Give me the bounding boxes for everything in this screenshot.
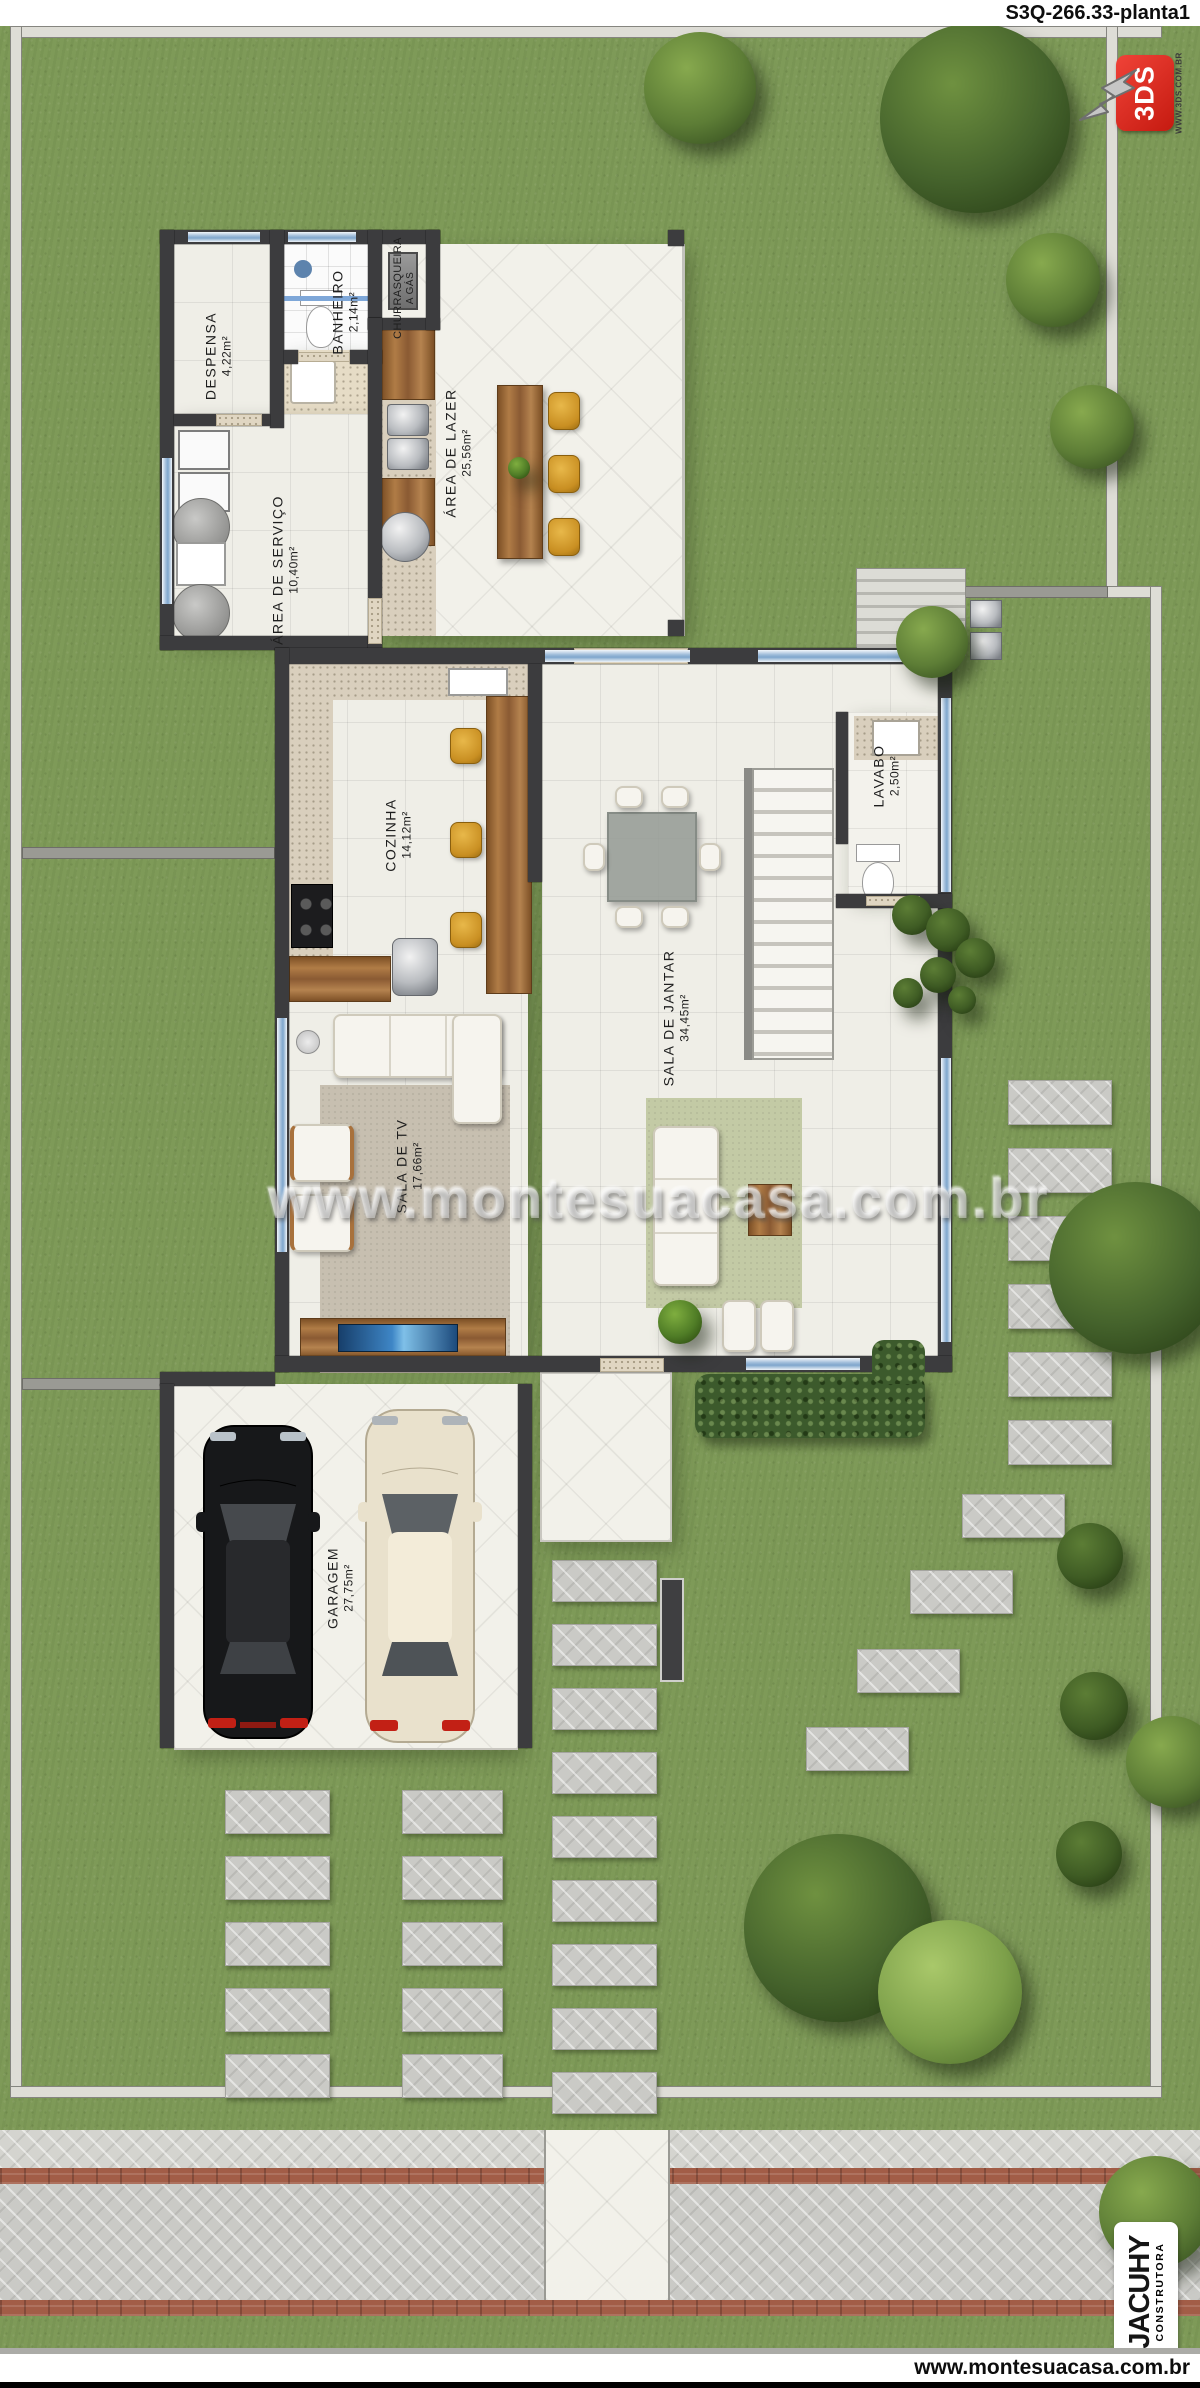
label-cozinha: COZINHA14,12m² — [383, 798, 414, 872]
dining-table-glass — [607, 812, 697, 902]
paver-slab — [552, 1624, 657, 1666]
builder-logo-text: JACUHY CONSTRUTORA — [1126, 2235, 1166, 2348]
window — [288, 232, 356, 242]
room-area: 10,40m² — [287, 495, 301, 645]
room-area: A GÁS — [405, 237, 416, 339]
paver-slab — [225, 1922, 330, 1966]
sofa-chaise — [452, 1014, 502, 1124]
dining-chair — [661, 906, 689, 928]
room-name: LAVABO — [871, 745, 887, 808]
ottoman — [760, 1300, 794, 1352]
wall — [160, 1372, 275, 1386]
tree — [878, 1920, 1022, 2064]
room-area: 27,75m² — [342, 1547, 356, 1629]
floor-porch — [540, 1372, 672, 1542]
window — [941, 698, 951, 892]
kitchen-island — [486, 696, 532, 994]
wall — [160, 1384, 174, 1748]
shrub — [1060, 1672, 1128, 1740]
ac-unit — [970, 632, 1002, 660]
column — [668, 620, 684, 636]
3ds-arrow-icon — [1076, 66, 1140, 143]
wall — [528, 664, 542, 882]
label-churrasqueira: CHURRASQUEIRAA GÁS — [392, 237, 416, 339]
footer-bar: www.montesuacasa.com.br — [0, 2354, 1200, 2382]
builder-logo: JACUHY CONSTRUTORA — [1114, 2222, 1178, 2362]
paver-slab — [552, 1816, 657, 1858]
paver-slab — [552, 2008, 657, 2050]
watermark-text: www.montesuacasa.com.br — [268, 1166, 1050, 1231]
bar-chair — [548, 455, 580, 493]
window — [545, 650, 690, 662]
stair-rail — [744, 768, 752, 1060]
wall — [426, 230, 440, 330]
kitchen-cabinet-bottom — [289, 956, 391, 1002]
car-black — [196, 1420, 320, 1749]
dining-chair — [615, 906, 643, 928]
dining-chair — [661, 786, 689, 808]
beer-keg — [380, 512, 430, 562]
lot-wall-left — [10, 26, 22, 2096]
kitchen-sink — [448, 668, 508, 696]
room-name: BANHEIRO — [330, 269, 346, 354]
3ds-site: WWW.3DS.COM.BR — [1172, 55, 1186, 131]
garage-yard-wall-left — [22, 1378, 162, 1390]
paver-slab — [1008, 1420, 1112, 1465]
room-name: ÁREA DE LAZER — [443, 388, 459, 517]
washer — [178, 430, 230, 470]
counter-sink — [387, 438, 429, 470]
paver-slab — [552, 1688, 657, 1730]
paver-slab — [962, 1494, 1065, 1538]
room-name: CHURRASQUEIRA — [392, 237, 404, 339]
paver-slab — [402, 1856, 503, 1900]
shrub — [893, 978, 923, 1008]
wall — [836, 712, 848, 844]
plan-code: S3Q-266.33-planta1 — [1005, 2, 1190, 24]
paver-slab — [225, 1856, 330, 1900]
shrub — [955, 938, 995, 978]
room-area: 34,45m² — [678, 950, 692, 1087]
hedge — [872, 1340, 925, 1384]
room-area: 2,50m² — [888, 745, 902, 808]
trash-bin — [392, 938, 438, 996]
wall — [275, 648, 289, 1372]
paver-slab — [552, 1560, 657, 1602]
room-name: GARAGEM — [325, 1547, 341, 1629]
window — [162, 458, 172, 604]
room-name: DESPENSA — [203, 312, 219, 400]
shower-head — [294, 260, 312, 278]
room-area: 25,56m² — [460, 388, 474, 517]
ac-unit — [970, 600, 1002, 628]
paver-slab — [552, 1944, 657, 1986]
paver-slab — [806, 1727, 909, 1771]
brick-strip-bottom — [0, 2300, 1200, 2316]
builder-name: JACUHY — [1126, 2235, 1154, 2348]
paver-slab — [1008, 1352, 1112, 1397]
bar-chair — [548, 518, 580, 556]
shrub — [658, 1300, 702, 1344]
tree — [1050, 385, 1134, 469]
bar-chair — [450, 822, 482, 858]
counter-sink — [387, 404, 429, 436]
room-name: ÁREA DE SERVIÇO — [270, 495, 286, 645]
door-sill — [216, 414, 262, 426]
paver-slab — [402, 1988, 503, 2032]
paver-slab — [552, 1752, 657, 1794]
ottoman — [722, 1300, 756, 1352]
paver-slab — [402, 1922, 503, 1966]
laundry-sink — [176, 542, 226, 586]
car-cream — [358, 1404, 482, 1753]
bar-chair — [450, 728, 482, 764]
floor-lamp — [296, 1030, 320, 1054]
paver-slab — [857, 1649, 960, 1693]
label-sala-jantar: SALA DE JANTAR34,45m² — [661, 950, 692, 1087]
kitchen-counter-left — [289, 700, 333, 1000]
label-garagem: GARAGEM27,75m² — [325, 1547, 356, 1629]
side-yard-wall-left — [22, 847, 275, 859]
side-yard-wall-right — [964, 586, 1108, 598]
shrub — [508, 457, 530, 479]
room-name: COZINHA — [383, 798, 399, 872]
laundry-tank — [172, 584, 230, 642]
paver-slab — [552, 1880, 657, 1922]
shrub — [948, 986, 976, 1014]
door-sill — [368, 598, 382, 644]
room-area: 4,22m² — [220, 312, 234, 400]
footer-url: www.montesuacasa.com.br — [914, 2356, 1190, 2379]
room-name: SALA DE JANTAR — [661, 950, 677, 1087]
column — [668, 230, 684, 246]
tv-screen — [338, 1324, 458, 1352]
label-lavabo: LAVABO2,50m² — [871, 745, 902, 808]
title-bar: S3Q-266.33-planta1 — [0, 0, 1200, 26]
label-area-servico: ÁREA DE SERVIÇO10,40m² — [270, 495, 301, 645]
bottom-black-bar — [0, 2382, 1200, 2388]
paver-slab — [225, 1988, 330, 2032]
wall — [284, 350, 298, 364]
bar-chair — [548, 392, 580, 430]
paver-slab — [1008, 1080, 1112, 1125]
dining-chair — [699, 843, 721, 871]
window — [746, 1358, 860, 1370]
room-area: 14,12m² — [400, 798, 414, 872]
wall — [368, 230, 382, 330]
dining-chair — [583, 843, 605, 871]
paver-slab — [225, 1790, 330, 1834]
front-door-sill — [600, 1358, 664, 1372]
wall — [518, 1384, 532, 1748]
room-area: 2,14m² — [347, 269, 361, 354]
builder-subtitle: CONSTRUTORA — [1154, 2235, 1166, 2348]
tree — [644, 32, 756, 144]
toilet — [856, 844, 900, 862]
window — [188, 232, 260, 242]
tree — [1006, 233, 1100, 327]
paver-slab — [402, 2054, 503, 2098]
gate-post — [660, 1578, 684, 1682]
bar-chair — [450, 912, 482, 948]
paver-slab — [225, 2054, 330, 2098]
wall — [270, 230, 284, 428]
label-banheiro: BANHEIRO2,14m² — [330, 269, 361, 354]
staircase — [752, 768, 834, 1060]
label-despensa: DESPENSA4,22m² — [203, 312, 234, 400]
label-area-lazer: ÁREA DE LAZER25,56m² — [443, 388, 474, 517]
shrub — [1057, 1523, 1123, 1589]
3ds-site-text: WWW.3DS.COM.BR — [1175, 52, 1184, 134]
paver-slab — [552, 2072, 657, 2114]
dining-chair — [615, 786, 643, 808]
floor-plan-render: DESPENSA4,22m² BANHEIRO2,14m² CHURRASQUE… — [0, 0, 1200, 2388]
vanity-sink — [290, 360, 336, 404]
shrub — [920, 957, 956, 993]
stove — [291, 884, 333, 948]
shrub — [1056, 1821, 1122, 1887]
shrub — [896, 606, 968, 678]
driveway-ramp — [544, 2130, 670, 2300]
paver-slab — [402, 1790, 503, 1834]
paver-slab — [910, 1570, 1013, 1614]
tree — [880, 23, 1070, 213]
